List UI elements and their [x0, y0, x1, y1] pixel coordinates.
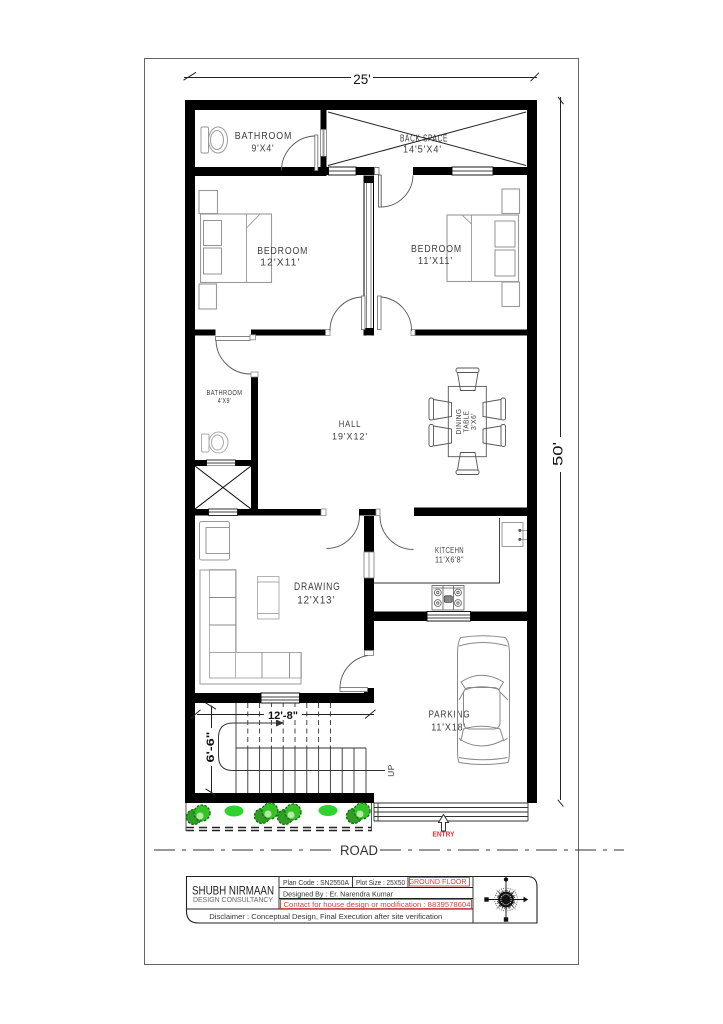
svg-text:3'X6': 3'X6' [471, 413, 478, 430]
svg-text:UP: UP [387, 764, 396, 777]
svg-text:DINING: DINING [456, 409, 463, 435]
svg-text:PARKING: PARKING [429, 710, 471, 721]
svg-text:BEDROOM: BEDROOM [257, 246, 308, 257]
svg-text:ROAD: ROAD [340, 843, 378, 858]
svg-text:6'-6": 6'-6" [205, 732, 217, 763]
svg-text:19'X12': 19'X12' [332, 432, 368, 443]
svg-text:11'X6'8": 11'X6'8" [435, 556, 464, 565]
svg-text:TABLE: TABLE [464, 411, 471, 433]
svg-text:12'X11': 12'X11' [260, 258, 300, 269]
svg-text:KITCEHN: KITCEHN [435, 546, 464, 555]
svg-text:11'X11': 11'X11' [418, 256, 453, 267]
svg-text:12'-8": 12'-8" [268, 710, 298, 722]
svg-text:12'X13': 12'X13' [297, 595, 335, 607]
svg-text:BATHROOM: BATHROOM [235, 130, 293, 142]
svg-text:DRAWING: DRAWING [294, 581, 341, 593]
svg-text:50': 50' [551, 442, 566, 466]
svg-text:BATHROOM: BATHROOM [207, 390, 243, 397]
svg-text:11'X18': 11'X18' [431, 723, 466, 734]
svg-text:BEDROOM: BEDROOM [411, 244, 462, 255]
svg-text:DESIGN CONSULTANCY: DESIGN CONSULTANCY [193, 895, 273, 904]
svg-text:Plot Size : 25X50: Plot Size : 25X50 [356, 878, 405, 887]
svg-text:HALL: HALL [339, 419, 362, 430]
svg-text:GROUND FLOOR: GROUND FLOOR [409, 877, 468, 886]
svg-text:ENTRY: ENTRY [433, 830, 455, 839]
svg-text:Plan Code : SN2550A: Plan Code : SN2550A [283, 878, 349, 887]
svg-text:25': 25' [353, 72, 371, 87]
svg-text:4'X9': 4'X9' [218, 398, 232, 405]
svg-text:Contact for house design or mo: Contact for house design or modification… [284, 900, 471, 909]
svg-text:Disclaimer : Conceptual Design: Disclaimer : Conceptual Design, Final Ex… [209, 912, 442, 921]
svg-text:9'X4': 9'X4' [252, 143, 275, 155]
svg-text:14'5'X4': 14'5'X4' [403, 145, 442, 156]
svg-text:Designed By : Er. Narendra Kum: Designed By : Er. Narendra Kumar [283, 890, 394, 899]
